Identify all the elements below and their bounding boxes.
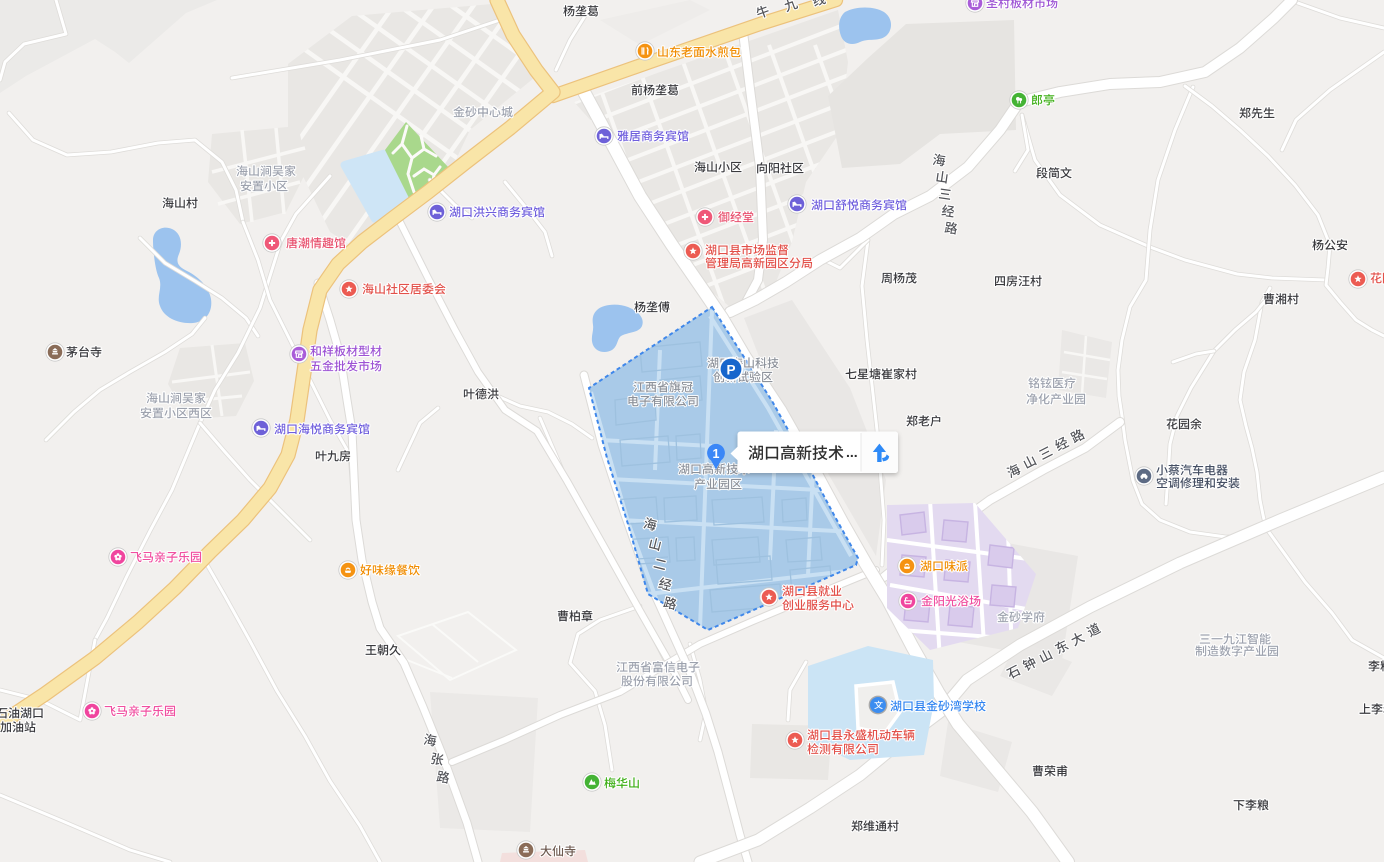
svg-text:P: P	[726, 363, 735, 378]
svg-text:...: ...	[846, 444, 858, 460]
svg-text:1: 1	[713, 447, 720, 461]
